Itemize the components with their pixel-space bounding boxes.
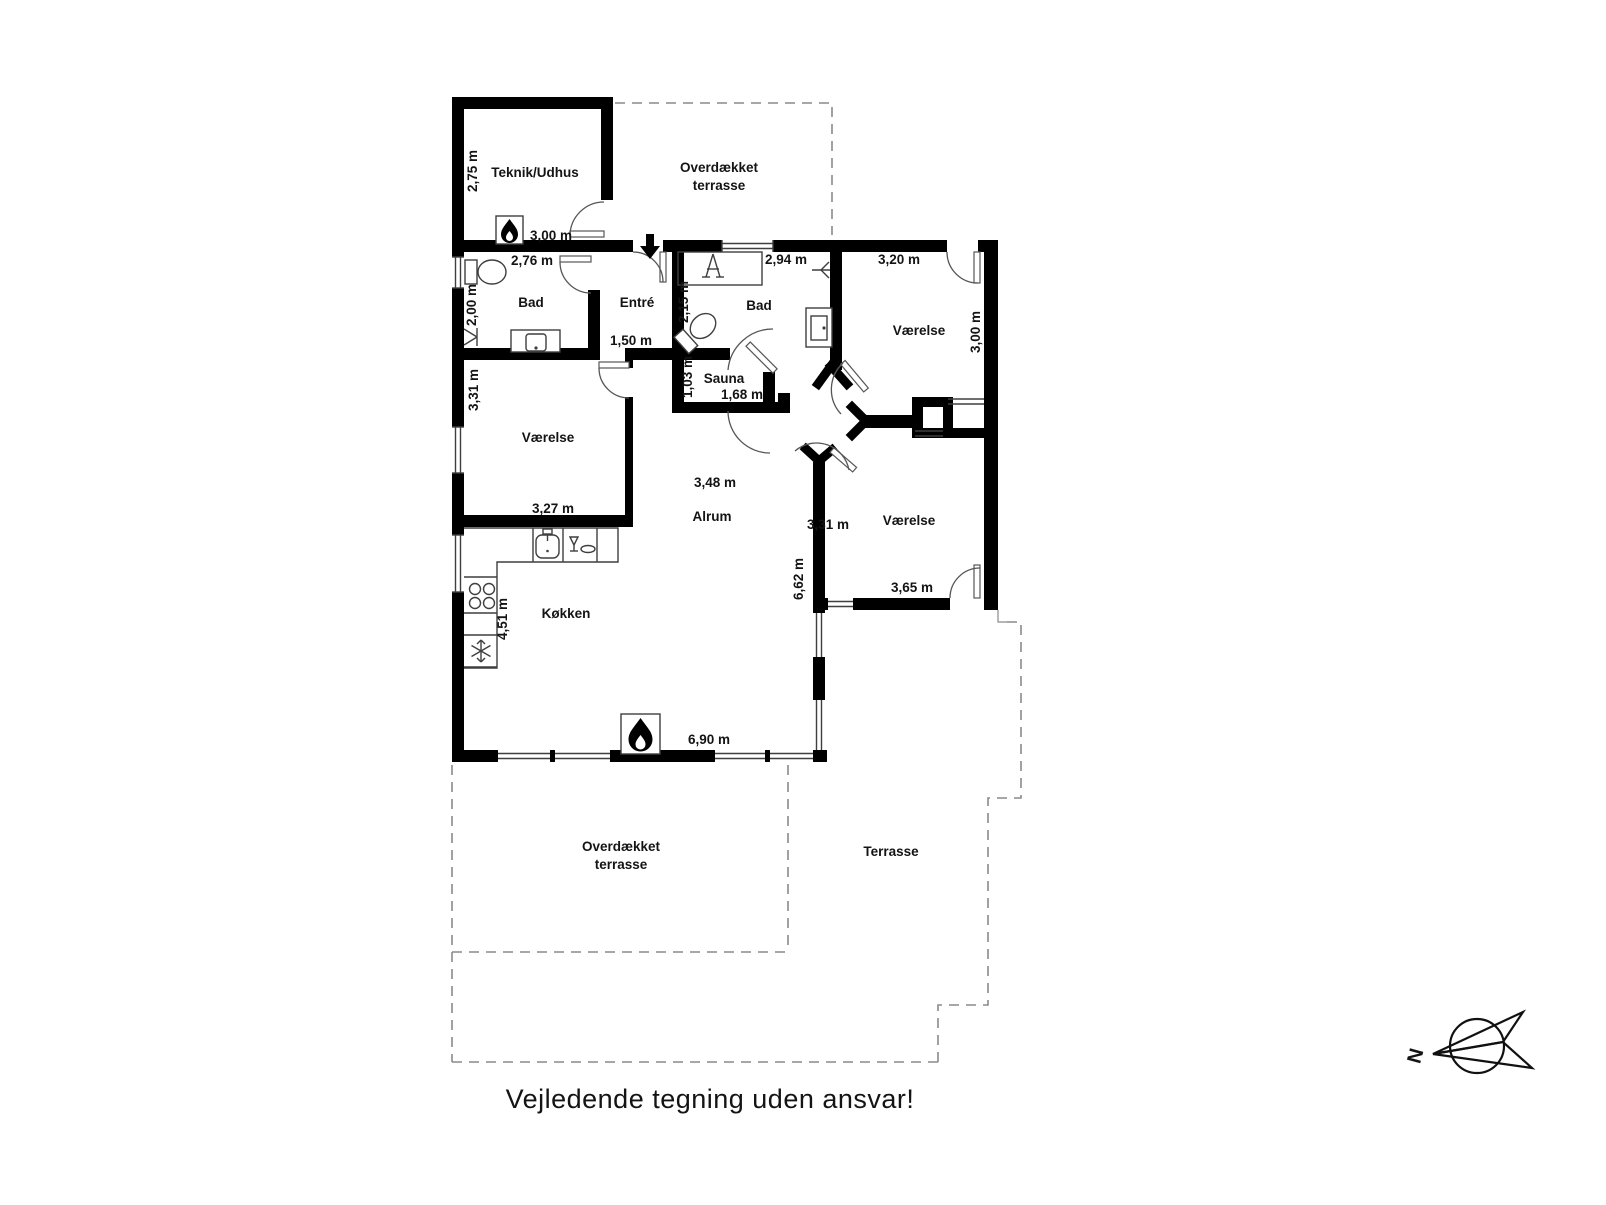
entrance-arrow-icon [640,234,660,259]
dim-alrum-south: 6,90 m [688,732,730,747]
window-vaerelse-left [452,427,464,473]
dim-vaerelse-left-height: 3,31 m [466,369,481,411]
window-alrum-east-1 [813,613,825,657]
stove-icon [470,584,495,609]
dim-alrum-east-height: 6,62 m [791,558,806,600]
terrace-bottom-line1: Overdækket [582,839,661,854]
dim-bad-right-height: 2,15 m [676,281,691,323]
dim-sauna-height: 1,03 m [680,356,695,398]
dim-vaerelse-left-width: 3,27 m [532,501,574,516]
terrace-top-line1: Overdækket [680,160,759,175]
window-bad-right [722,240,773,252]
room-label-bad-left: Bad [518,295,544,310]
dim-vaerelse-bottom-right-width: 3,65 m [891,580,933,595]
window-alrum-south-4 [770,750,813,762]
door-bad-left [560,256,591,293]
window-alrum-east-2 [813,700,825,750]
compass-north-label: N [1404,1046,1429,1066]
antenna-icon-right [812,262,830,278]
toilet-icon-left [465,260,506,284]
room-label-terrasse: Terrasse [863,844,919,859]
disclaimer-title: Vejledende tegning uden ansvar! [506,1084,915,1114]
dishwasher-icon [570,537,595,553]
door-vaerelse-top-right [947,252,980,283]
drain-icon [702,254,724,277]
closet-opening-north [948,399,984,404]
labels: Teknik/Udhus 3,00 m 2,75 m Overdækket te… [464,150,983,1114]
terrace-top-line2: terrasse [693,178,746,193]
dim-teknik-height: 2,75 m [465,150,480,192]
dim-bad-left-height: 2,00 m [464,284,479,326]
room-label-koekken: Køkken [542,606,591,621]
window-koekken [452,535,464,592]
door-vaerelse-left [599,362,629,398]
door-vaerelse-bottom-terrace [950,565,980,598]
floor-plan-drawing: Teknik/Udhus 3,00 m 2,75 m Overdækket te… [0,0,1606,1205]
door-teknik [570,202,604,237]
room-label-teknik: Teknik/Udhus [491,165,579,180]
sink-icon [536,529,559,558]
fireplace-icon [621,714,660,754]
dim-vaerelse-top-right-height: 3,00 m [968,311,983,353]
dim-sauna-width: 1,68 m [721,387,763,402]
dim-bad-right-width: 2,94 m [765,252,807,267]
dim-bad-left-width: 2,76 m [511,253,553,268]
dim-teknik-width: 3,00 m [530,228,572,243]
stove-flame-icon [496,216,523,244]
dim-koekken-height: 4,51 m [495,598,510,640]
room-label-alrum: Alrum [692,509,731,524]
floor-plan-page: Teknik/Udhus 3,00 m 2,75 m Overdækket te… [0,0,1606,1205]
dim-vaerelse-bottom-right-height: 3,31 m [807,517,849,532]
terrace-bottom-line2: terrasse [595,857,648,872]
room-label-entre: Entré [620,295,655,310]
room-label-vaerelse-bottom-right: Værelse [883,513,936,528]
window-alrum-south-1 [498,750,550,762]
dim-vaerelse-top-right-width: 3,20 m [878,252,920,267]
fridge-icon [472,640,491,662]
dim-alrum-center: 3,48 m [694,475,736,490]
room-label-sauna: Sauna [704,371,745,386]
window-alrum-south-2 [555,750,610,762]
shower-area [678,252,762,285]
window-vaerelse-bottom [828,598,853,610]
window-alrum-south-3 [715,750,765,762]
basin-cabinet-icon [511,330,560,352]
antenna-icon-left [464,328,477,346]
shower-fixture-icon [806,308,832,347]
compass-icon [1433,1012,1532,1073]
room-label-bad-right: Bad [746,298,772,313]
room-label-vaerelse-top-right: Værelse [893,323,946,338]
room-label-vaerelse-left: Værelse [522,430,575,445]
window-bad-left [452,257,464,288]
dim-entre-width: 1,50 m [610,333,652,348]
